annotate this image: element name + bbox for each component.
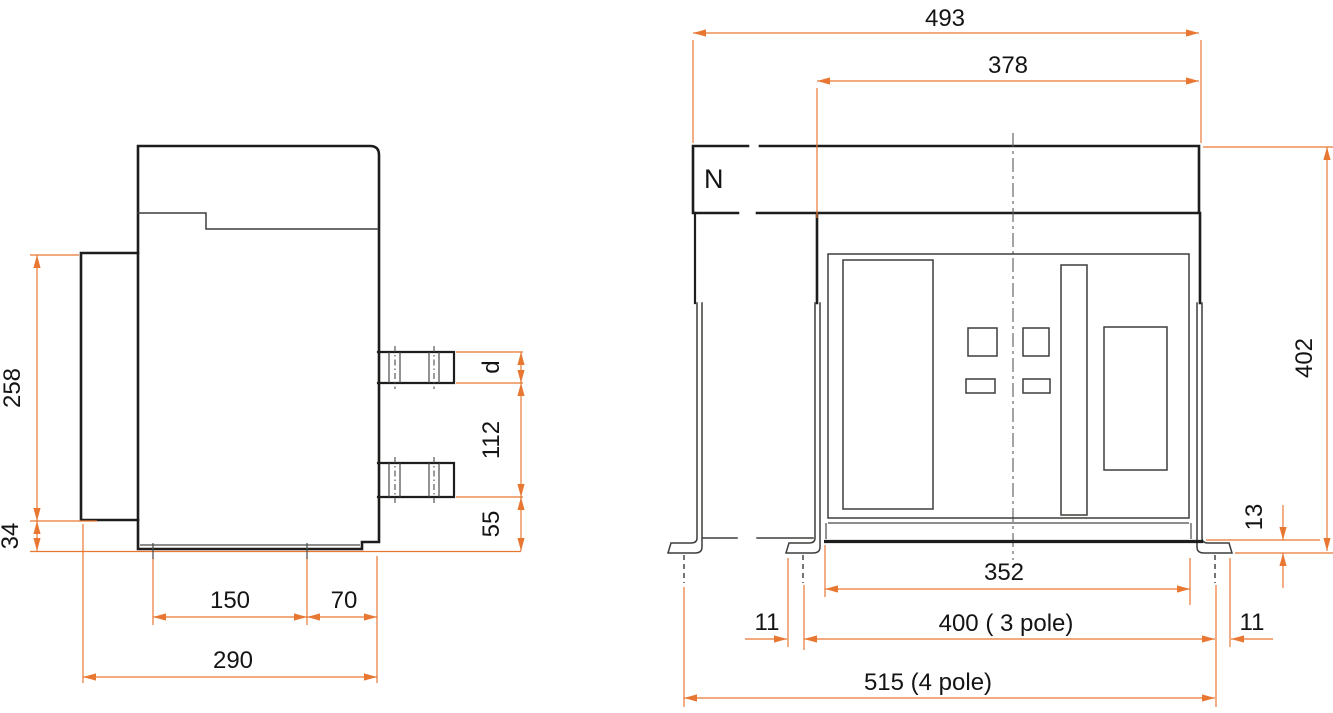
- panel-slot-left: [966, 379, 995, 393]
- side-body-outline: [138, 146, 379, 549]
- front-view: N: [668, 5, 1333, 707]
- dim-label-150: 150: [210, 587, 250, 614]
- dim-label-11-left: 11: [755, 609, 780, 636]
- side-view: 258 34 150 70 290 d 112 55: [0, 146, 523, 683]
- front-panel: [828, 254, 1189, 518]
- bracket-left: [668, 303, 702, 553]
- dim-label-13: 13: [1241, 504, 1268, 531]
- front-top-band: [693, 146, 1199, 213]
- dim-label-11-right: 11: [1240, 609, 1265, 636]
- upper-terminal-inner-lines: [389, 352, 439, 383]
- panel-vertical-bar: [1061, 265, 1087, 515]
- dim-label-34: 34: [0, 523, 24, 550]
- dim-label-55: 55: [478, 511, 505, 538]
- dim-label-515-4pole: 515 (4 pole): [864, 669, 992, 696]
- lower-terminal-inner-lines: [389, 463, 439, 497]
- panel-left-door: [843, 260, 933, 509]
- dim-label-70: 70: [331, 587, 358, 614]
- dim-label-493: 493: [925, 5, 965, 32]
- bracket-middle: [786, 303, 820, 553]
- side-step-lines: [138, 213, 378, 229]
- dim-label-258: 258: [0, 368, 26, 408]
- lower-terminal-block: [378, 457, 454, 503]
- dim-label-d: d: [478, 360, 505, 373]
- side-rear-protrusion: [81, 253, 138, 520]
- neutral-pole-label: N: [704, 164, 724, 194]
- panel-square-left: [968, 328, 997, 356]
- upper-terminal-block: [378, 346, 454, 389]
- side-extension-lines: [30, 255, 523, 683]
- bracket-right: [1197, 303, 1232, 553]
- breaker-dimension-drawing: 258 34 150 70 290 d 112 55 N: [0, 0, 1333, 713]
- front-extension-lines: [684, 40, 1333, 707]
- panel-square-right: [1023, 328, 1049, 356]
- dim-label-400-3pole: 400 ( 3 pole): [939, 610, 1074, 637]
- dim-label-352: 352: [984, 559, 1024, 586]
- panel-right-window: [1104, 327, 1167, 470]
- technical-drawing-page: 258 34 150 70 290 d 112 55 N: [0, 0, 1333, 713]
- dim-label-402: 402: [1291, 338, 1318, 378]
- panel-slot-right: [1023, 379, 1050, 393]
- bolt-centerlines: [684, 555, 1215, 583]
- front-panel-bottom-lines: [826, 523, 1191, 539]
- dim-label-112: 112: [478, 421, 505, 459]
- dim-label-290: 290: [213, 647, 253, 674]
- dim-label-378: 378: [988, 52, 1028, 79]
